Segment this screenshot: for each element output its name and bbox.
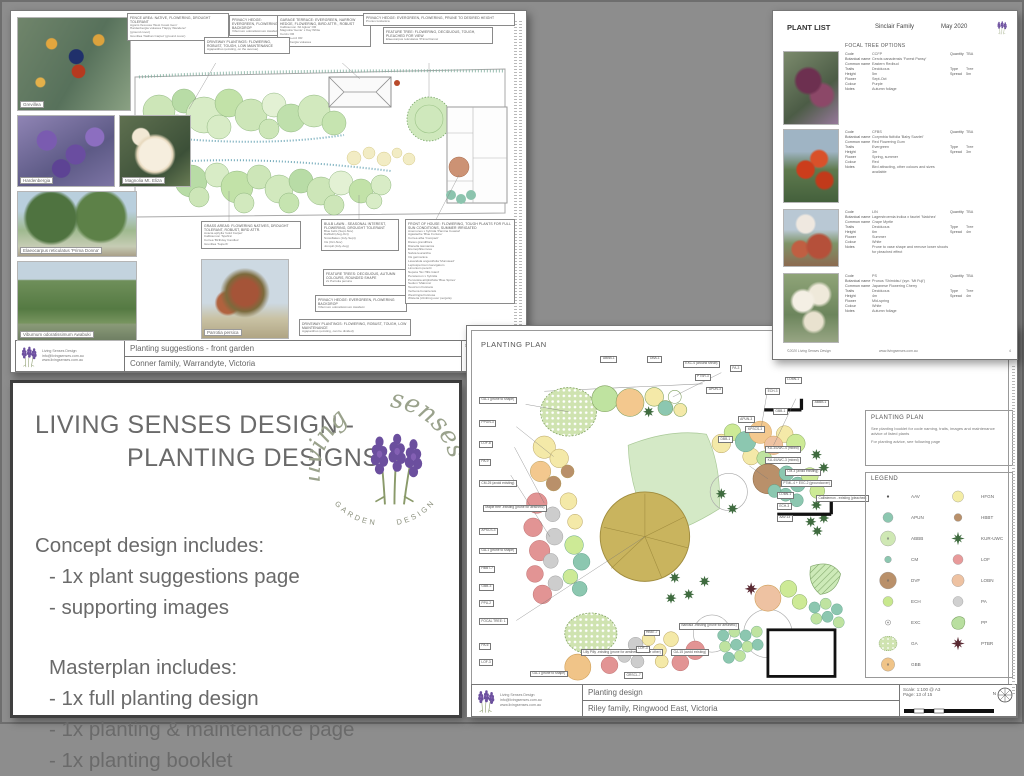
plan-callout: PPGN-3 (479, 420, 496, 427)
field-label: Quantity (950, 274, 966, 279)
legend-symbol-cell (871, 550, 905, 569)
callout-line: 2x Parrotia persica (326, 280, 410, 284)
plan-callout: APUN-3 (738, 416, 755, 423)
plan-callout: PA-3 (730, 365, 742, 372)
legend-code: LOBN (981, 578, 994, 583)
plan-callout: HBBT-7 (479, 566, 496, 573)
fine-print-column (1012, 366, 1015, 696)
plant-field-row: NotesPrune to vase shape and remove lowe… (845, 245, 1011, 255)
plant-list-page-number: 4 (1009, 349, 1011, 353)
legend-item: GBB (871, 654, 937, 675)
plant-photo-ccfp (783, 51, 839, 125)
living-senses-logo-small (18, 343, 40, 370)
callout-line: Jonquil (July-Aug) (324, 245, 396, 249)
legend-item: HBBT (941, 507, 1007, 528)
document-planting-suggestions: Living Senses Design info@livingsenses.c… (10, 10, 527, 373)
legend-code: PTBR (981, 641, 993, 646)
legend-symbol-hbbt (941, 508, 975, 527)
plant-photo-grevillea: Grevillea (17, 17, 131, 111)
legend-code: GA (911, 641, 918, 646)
field-value: TBA (966, 130, 973, 135)
legend-symbol-cell (871, 634, 905, 653)
photo-caption: Grevillea (20, 101, 44, 108)
logo-script-living: living (309, 403, 352, 483)
doc-title: Planting suggestions - front garden (125, 341, 461, 356)
plan-callout: HBBT-7 (644, 630, 661, 637)
legend-symbol-cell (941, 529, 975, 548)
legend-item: PTBR (941, 633, 1007, 654)
legend-item: ECH (871, 591, 937, 612)
legend-code: AAV (911, 494, 920, 499)
plan-callout: KU-4/UWC-3 (mixed) (765, 457, 801, 464)
plan-callout: APUN-3 (706, 387, 723, 394)
front-title-block: Living Senses Design info@livingsenses.c… (15, 340, 527, 372)
legend-symbol-kur-uwc (941, 529, 975, 548)
legend-item: CM (871, 549, 937, 570)
field-label: Notes (845, 87, 872, 92)
plant-photo-cfbs (783, 129, 839, 203)
field-label: Notes (845, 165, 872, 175)
plan-callout: DBB-1 (718, 436, 733, 443)
callout-line: Hardenbergia violacea (280, 41, 368, 45)
field-label: Spread (950, 150, 966, 155)
legend-item: ABBB (871, 528, 937, 549)
plant-photo-magnolia: Magnolia Mt. Eliza (119, 115, 191, 187)
note-title: PLANTING PLAN (871, 415, 1007, 423)
legend-code: EXC (911, 620, 920, 625)
plant-list-url: www.livingsenses.com.au (879, 349, 918, 353)
doc-client: Riley family, Ringwood East, Victoria (583, 700, 899, 716)
plan-title: PLANTING PLAN (481, 340, 547, 349)
plant-fields: CodeCFBSQuantityTBABotanical nameCorymbi… (845, 130, 1011, 175)
plan-callout: Maple tree -existing (prune for aestheti… (483, 505, 547, 512)
logo-arc-garden: GARDEN (333, 499, 378, 527)
plant-photo-ps (783, 273, 839, 343)
plan-callout: PTML-4 + EXC-2 (groundcover) (781, 480, 833, 487)
legend-item: PA (941, 591, 1007, 612)
logo-arc-design: DESIGN (396, 497, 438, 526)
plan-callout: ABBB-1 (812, 400, 829, 407)
promo-concept-heading: Concept design includes: (35, 531, 445, 562)
legend-item: GA (871, 633, 937, 654)
legend-symbol-gbb (871, 655, 905, 674)
field-value: 5m (966, 72, 971, 77)
field-value: TBA (966, 52, 973, 57)
callout-box: GRASS AREAS: FLOWERING NATIVES, DROUGHT … (201, 221, 301, 249)
document-planting-plan: PLANTING PLAN (466, 325, 1018, 718)
callout-line: Agapanthus (existing, on the avenue) (207, 48, 287, 52)
living-senses-logo-small (995, 19, 1009, 36)
legend-item: APUN (871, 507, 937, 528)
legend-symbol-ech (871, 592, 905, 611)
contact-web: www.livingsenses.com.au (500, 703, 542, 708)
field-value: Bird attracting, other colours and sizes… (872, 165, 950, 175)
legend-item: HFGN (941, 486, 1007, 507)
plant-field-row: NotesBird attracting, other colours and … (845, 165, 1011, 175)
legend-symbol-apun (871, 508, 905, 527)
callout-line: Viburnum odoratissimum Awabuki (318, 306, 404, 310)
plant-field-row: NotesAutumn foliage (845, 87, 1011, 92)
plan-callout: PTSR-3 (695, 374, 712, 381)
callout-line: Grevillea 'Superb' (204, 243, 298, 247)
legend-item: PP (941, 612, 1007, 633)
plan-callout: APSCS-3 (479, 528, 498, 535)
plant-photo-parrotia: Parrotia persica (201, 259, 289, 339)
promo-master-item: - 1x planting & maintenance page (35, 715, 445, 746)
promo-concept-item: - supporting images (35, 593, 445, 624)
plan-callout: GBB-3 (479, 584, 494, 591)
legend-symbol-exc (871, 613, 905, 632)
legend-symbol-cell (871, 655, 905, 674)
legend-item: DVF (871, 570, 937, 591)
legend-symbol-cell (941, 571, 975, 590)
legend-symbol-cell (871, 613, 905, 632)
plan-callout: GA-15 (avoid existing) (671, 649, 709, 656)
legend-symbol-ptbr (941, 634, 975, 653)
plan-callout: PA-6 (479, 643, 491, 650)
legend-symbol-aav (871, 487, 905, 506)
field-label: Quantity (950, 52, 966, 57)
legend-item: EXC (871, 612, 937, 633)
plan-callout: CM-25 (avoid existing) (479, 480, 517, 487)
plant-photo-hardenbergia: Hardenbergia (17, 115, 115, 187)
legend-symbol-cell (941, 508, 975, 527)
field-value: 4m (966, 230, 971, 235)
promo-concept-item: - 1x plant suggestions page (35, 562, 445, 593)
legend-code: KUR-UWC (981, 536, 1003, 541)
legend-symbol-cell (871, 571, 905, 590)
legend-symbol-cell (871, 508, 905, 527)
callout-box: PRIVACY HEDGE: EVERGREEN, FLOWERING, PRU… (363, 13, 515, 26)
plan-note-box: PLANTING PLAN See planting booklet for c… (865, 410, 1013, 466)
legend-code: APUN (911, 515, 924, 520)
field-label: Spread (950, 72, 966, 77)
photo-caption: Parrotia persica (204, 329, 242, 336)
plan-title-block: Living Senses Design info@livingsenses.c… (471, 684, 1017, 717)
callout-line: Elaeocarpus reticulatus 'Prima Donna' (386, 38, 490, 42)
plant-list-section: FOCAL TREE OPTIONS (845, 43, 905, 50)
plan-callout: CM-3 (avoid existing) (785, 469, 821, 476)
legend-code: DVF (911, 578, 920, 583)
field-value: TBA (966, 274, 973, 279)
legend-code: ECH (911, 599, 921, 604)
plant-fields: CodePSQuantityTBABotanical namePrunus 'S… (845, 274, 1011, 314)
field-value: 3m (966, 150, 971, 155)
callout-box: FEATURE TREES: DECIDUOUS, AUTUMN COLOURS… (323, 269, 413, 286)
collage-background: Living Senses Design info@livingsenses.c… (0, 0, 1024, 724)
note-line1: See planting booklet for code naming, tr… (871, 426, 1007, 436)
living-senses-logo-small (474, 687, 498, 715)
promo-master-heading: Masterplan includes: (35, 653, 445, 684)
legend-symbol-lof (941, 550, 975, 569)
promo-panel: LIVING SENSES DESIGN - PLANTING DESIGNS … (10, 380, 462, 718)
plan-callout: ECH-3 (765, 388, 780, 395)
plan-callout: LOF-8 (479, 441, 493, 448)
callout-box: DRIVEWAY PLANTINGS: FLOWERING, ROBUST, T… (299, 319, 411, 336)
legend-symbol-ga (871, 634, 905, 653)
field-value: TBA (966, 210, 973, 215)
legend-symbol-cell (941, 592, 975, 611)
plan-callout: AAV-13 (777, 515, 793, 522)
plant-fields: CodeCCFPQuantityTBABotanical nameCercis … (845, 52, 1011, 92)
legend-code: CM (911, 557, 918, 562)
plan-drawing (475, 354, 867, 682)
contact-web: www.livingsenses.com.au (42, 358, 84, 363)
legend-symbol-lobn (941, 571, 975, 590)
plan-legend: LEGEND AAVAPUNABBBCMDVFECHEXCGAGBB HFGNH… (865, 472, 1013, 678)
legend-code: ABBB (911, 536, 923, 541)
plant-fields: CodeLINQuantityTBABotanical nameLagerstr… (845, 210, 1011, 255)
callout-box: GARAGE TERRACE: EVERGREEN, NARROW HEDGE,… (277, 15, 371, 47)
plan-callout: GRSCL-7 (624, 672, 643, 679)
photo-caption: Elaeocarpus reticulatus 'Prima Donna' (20, 247, 102, 254)
plan-callout: DBA-1 (647, 356, 662, 363)
plan-callout: Lilly Pilly -existing (prune for aesthet… (581, 649, 664, 656)
legend-symbol-cell (941, 550, 975, 569)
legend-code: HFGN (981, 494, 994, 499)
field-label: Quantity (950, 130, 966, 135)
note-line2: For planting advice, see following page (871, 439, 1007, 444)
field-label: Notes (845, 245, 872, 255)
legend-code: GBB (911, 662, 921, 667)
plant-field-row: NotesAutumn foliage (845, 309, 1011, 314)
plan-callout: ABBB-1 (600, 356, 617, 363)
legend-title: LEGEND (871, 476, 1007, 484)
plan-callout: LOBN-1 (777, 492, 794, 499)
legend-symbol-cell (871, 487, 905, 506)
living-senses-logo: living senses GARDEN DESIGN (309, 393, 459, 535)
plant-list-copyright: ©2020 Living Senses Design (787, 349, 831, 353)
field-label: Quantity (950, 210, 966, 215)
document-plant-list: PLANT LIST Sinclair Family May 2020 FOCA… (772, 10, 1018, 360)
callout-line: Wisteria (climbing over pergola) (408, 297, 512, 301)
legend-symbol-cell (941, 487, 975, 506)
legend-symbol-hfgn (941, 487, 975, 506)
photo-caption: Hardenbergia (20, 177, 53, 184)
legend-symbol-cell (941, 634, 975, 653)
svg-text:living: living (309, 403, 352, 483)
plan-callout: PA-9 (479, 459, 491, 466)
plant-photo-trees: Elaeocarpus reticulatus 'Prima Donna' (17, 191, 137, 257)
callout-box: FRONT OF HOUSE: FLOWERING, TOUGH PLANTS … (405, 219, 515, 304)
legend-code: PA (981, 599, 987, 604)
legend-symbol-cell (871, 529, 905, 548)
plan-callout: KU-3/UWC-4 (mixed) (765, 446, 801, 453)
plan-callout: LOF-3 (479, 659, 493, 666)
plan-callout: GA-1 (prune to shape) (479, 397, 517, 404)
plan-callout: Callistemon - existing (pleached) (816, 495, 869, 502)
field-label: Spread (950, 294, 966, 299)
legend-item: AAV (871, 486, 937, 507)
plant-photo-lin (783, 209, 839, 267)
callout-box: BULB LAWN - SEASONAL INTEREST, FLOWERING… (321, 219, 399, 251)
callout-box: DRIVEWAY PLANTINGS: FLOWERING, ROBUST, T… (204, 37, 290, 54)
field-label: Spread (950, 230, 966, 235)
field-value: Prune to vase shape and remove lower sho… (872, 245, 950, 255)
photo-caption: Viburnum odoratissimum Awabuki (20, 331, 94, 338)
photo-caption: Magnolia Mt. Eliza (122, 177, 165, 184)
field-label: Notes (845, 309, 872, 314)
plan-callout: EXC-4 (around shrub) (683, 361, 720, 368)
legend-symbol-cell (941, 613, 975, 632)
scale-bar (904, 707, 996, 714)
legend-symbol-abbb (871, 529, 905, 548)
plan-callout: GBB-1 (773, 408, 788, 415)
north-compass-icon (997, 687, 1013, 703)
promo-master-item: - 1x full planting design (35, 684, 445, 715)
legend-symbol-pp (941, 613, 975, 632)
callout-line: Prunus lusitanica (366, 20, 512, 24)
plan-callout: GA-1 (prune to shape) (530, 671, 568, 678)
plan-callout: GA-1 (prune to shape) (479, 548, 517, 555)
plan-callout: Banksia -existing (prune for aesthetic) (679, 623, 739, 630)
callout-line: Agapanthus (existing, can be divided) (302, 330, 408, 334)
legend-symbol-cell (871, 592, 905, 611)
field-value: 4m (966, 294, 971, 299)
legend-symbol-dvf (871, 571, 905, 590)
legend-symbol-pa (941, 592, 975, 611)
legend-symbol-cm (871, 550, 905, 569)
plant-photo-viburnum: Viburnum odoratissimum Awabuki (17, 261, 137, 341)
north-label: N (993, 691, 996, 696)
callout-box: PRIVACY HEDGE: EVERGREEN, FLOWERING BACK… (315, 295, 407, 312)
promo-master-item: - 1x planting booklet (35, 746, 445, 776)
plant-list-date: May 2020 (941, 24, 967, 32)
callout-box: FEATURE TREE: FLOWERING, DECIDUOUS, TOUG… (383, 27, 493, 44)
fine-print-column (519, 21, 522, 333)
legend-item: LOF (941, 549, 1007, 570)
plan-callout: KPSCS-3 (745, 426, 764, 433)
legend-item: LOBN (941, 570, 1007, 591)
plan-drawing-area: ABBB-1DBA-1EXC-4 (around shrub)PTSR-3APU… (475, 354, 867, 682)
plant-list-family: Sinclair Family (875, 24, 914, 32)
legend-code: LOF (981, 557, 990, 562)
plan-callout: ECH-3 (777, 503, 792, 510)
doc-client: Conner family, Warrandyte, Victoria (125, 356, 461, 372)
doc-title: Planting design (583, 685, 899, 700)
plant-list-title: PLANT LIST (787, 23, 830, 32)
svg-text:DESIGN: DESIGN (396, 497, 438, 526)
plan-callout: LOF-3 (636, 646, 650, 653)
plan-callout: LOBN-1 (785, 377, 802, 384)
plan-callout: PPU-2 (479, 600, 494, 607)
field-value: Autumn foliage (872, 87, 950, 92)
legend-item: KUR-UWC (941, 528, 1007, 549)
legend-code: HBBT (981, 515, 993, 520)
svg-text:GARDEN: GARDEN (333, 499, 378, 527)
field-value: Autumn foliage (872, 309, 950, 314)
legend-code: PP (981, 620, 987, 625)
plan-callout: FOCAL TREE: 1 (479, 618, 508, 625)
